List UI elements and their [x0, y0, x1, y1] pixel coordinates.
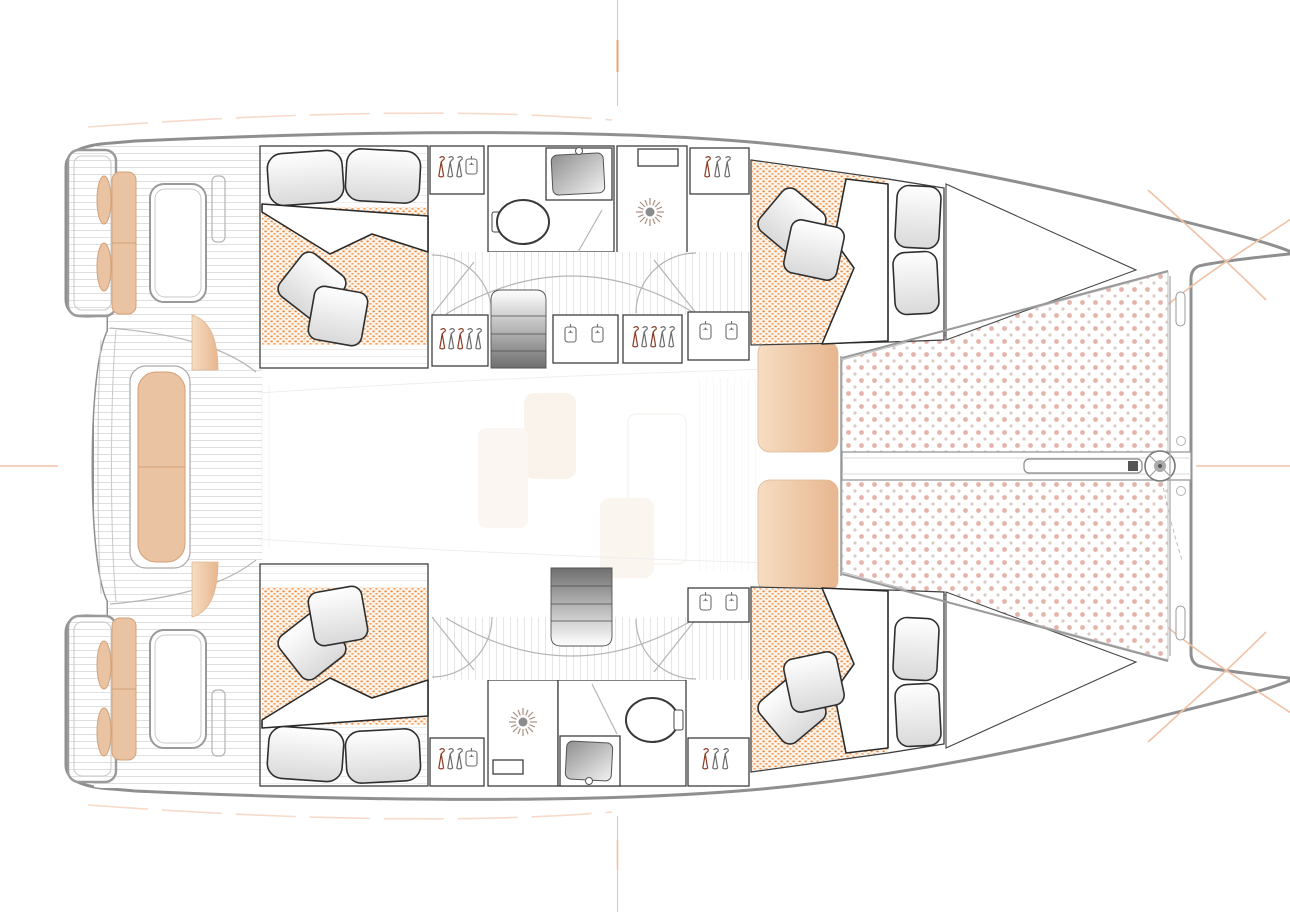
- cabinet-garments: [553, 315, 618, 363]
- anchor-roller: [1024, 459, 1142, 473]
- starboard-swim-platform: [68, 150, 116, 316]
- bed-foot-deck: [261, 565, 427, 587]
- starboard-fwd-wardrobe: [690, 148, 749, 194]
- starboard-cockpit-table: [150, 184, 206, 302]
- foredeck-lounge-pad-bottom: [758, 480, 838, 592]
- throw-pillow: [782, 650, 846, 714]
- roof-edge-ghost-top: [88, 113, 612, 127]
- anchor-fitting: [1128, 461, 1138, 471]
- port-cockpit-table: [150, 630, 206, 748]
- bowsprit-beam: [842, 452, 1191, 480]
- galley-ghost: [478, 428, 528, 528]
- cabinet-garments: [688, 312, 749, 360]
- beam-slot: [1176, 292, 1185, 326]
- shower-head-icon: [636, 198, 664, 226]
- companionway-stairs: [491, 290, 546, 368]
- stern-cockpit: [68, 146, 262, 788]
- throw-pillow: [307, 285, 370, 348]
- foredeck-lounge-pad-top: [758, 341, 838, 452]
- port-head: [558, 680, 686, 786]
- pillow: [345, 728, 422, 784]
- garment-bag-icon: [466, 156, 477, 174]
- sink-icon: [546, 148, 612, 201]
- pillow: [345, 148, 422, 204]
- sink-icon: [560, 736, 620, 786]
- starboard-aft-cabin: [260, 146, 428, 368]
- throw-pillow: [782, 218, 846, 282]
- pillow: [892, 617, 939, 681]
- port-fwd-wardrobe: [688, 738, 749, 786]
- beam-slot: [1176, 606, 1185, 640]
- shower-head-icon: [509, 708, 537, 736]
- deck-plan-drawing: [0, 0, 1290, 912]
- cabinet-garments: [688, 588, 749, 622]
- throw-pillow: [307, 585, 370, 648]
- bed-foot-deck: [261, 345, 427, 367]
- aft-center-bench: [130, 366, 190, 568]
- pillow: [892, 251, 939, 315]
- shower-shelf: [638, 149, 678, 166]
- beam-bolt: [1177, 487, 1186, 496]
- settee-ghost: [600, 498, 654, 578]
- throw-cushion: [97, 243, 111, 291]
- port-aft-wardrobe: [430, 738, 484, 786]
- roof-edge-ghost-bottom: [88, 805, 612, 819]
- starboard-corridor: [430, 252, 750, 315]
- companionway-stairs: [551, 568, 612, 646]
- starboard-head: [488, 146, 614, 252]
- garment-bag-icon: [466, 748, 477, 766]
- pillow: [894, 683, 941, 747]
- beam-bolt: [1177, 437, 1186, 446]
- pillow: [266, 149, 344, 206]
- port-aft-cabin: [260, 564, 428, 786]
- port-swim-platform: [68, 616, 116, 782]
- throw-cushion: [97, 641, 111, 689]
- starboard-aft-wardrobe: [430, 146, 484, 194]
- throw-cushion: [97, 176, 111, 224]
- starboard-shower: [617, 146, 687, 257]
- saloon-floor-ghost: [695, 378, 757, 572]
- port-shower: [488, 680, 558, 786]
- galley-ghost: [524, 393, 576, 479]
- wardrobe-hangers: [432, 315, 488, 366]
- shower-shelf: [493, 760, 523, 774]
- pillow: [266, 725, 344, 782]
- wardrobe-hangers: [623, 315, 682, 363]
- throw-cushion: [97, 708, 111, 756]
- catamaran-deck-plan: [0, 0, 1290, 912]
- pillow: [894, 185, 941, 249]
